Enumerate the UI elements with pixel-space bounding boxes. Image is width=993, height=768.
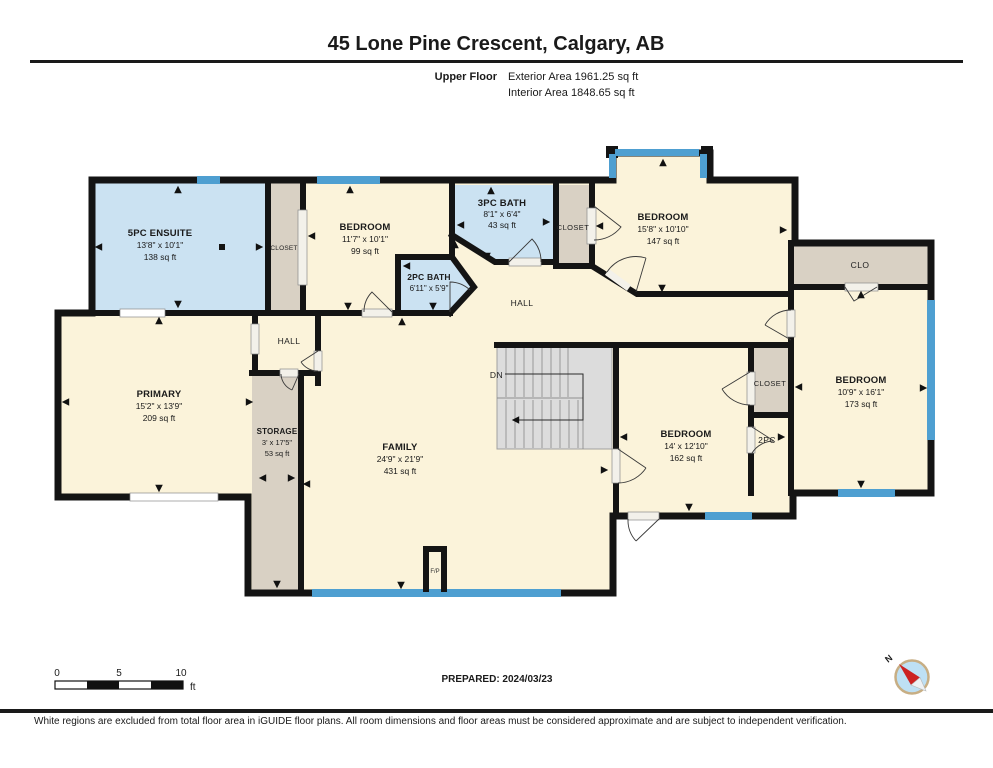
stairs-down-label: DN (490, 370, 503, 380)
room-area: 99 sq ft (351, 246, 380, 256)
room-area: 431 sq ft (384, 466, 417, 476)
closet2-label: CLOSET (557, 223, 589, 232)
room-name: FAMILY (382, 442, 418, 453)
prepared-date: PREPARED: 2024/03/23 (442, 674, 553, 685)
room-storage (252, 373, 301, 593)
scale-bar: 0 5 10 ft (54, 668, 196, 693)
scale-tick-5: 5 (116, 668, 122, 679)
room-name: BEDROOM (637, 212, 688, 223)
room-name: 3PC BATH (478, 198, 526, 209)
room-area: 138 sq ft (144, 252, 177, 262)
footer-divider (0, 709, 993, 713)
floor-label: Upper Floor (435, 71, 498, 83)
room-area: 53 sq ft (265, 449, 291, 458)
header-divider (30, 60, 963, 63)
closet1-label: CLOSET (270, 245, 297, 252)
room-area: 43 sq ft (488, 220, 517, 230)
scale-unit: ft (190, 682, 196, 693)
room-name: BEDROOM (339, 222, 390, 233)
hall-center-label: HALL (511, 298, 534, 308)
room-dims: 13'8" x 10'1" (137, 240, 184, 250)
compass-north-label: N (883, 653, 894, 665)
exterior-area: Exterior Area 1961.25 sq ft (508, 71, 638, 83)
hall-small-label: HALL (278, 336, 301, 346)
room-name: PRIMARY (137, 389, 182, 400)
room-dims: 14' x 12'10" (664, 441, 708, 451)
room-dims: 24'9" x 21'9" (377, 454, 424, 464)
room-name: STORAGE (257, 427, 298, 436)
room-name: 2PC BATH (407, 272, 450, 282)
scale-tick-0: 0 (54, 668, 60, 679)
fireplace-label: F/P (430, 569, 439, 575)
compass-icon: N (883, 653, 928, 694)
room-dims: 15'8" x 10'10" (637, 224, 688, 234)
room-dims: 6'11" x 5'9" (410, 284, 449, 293)
page-title: 45 Lone Pine Crescent, Calgary, AB (328, 33, 665, 55)
room-area: 209 sq ft (143, 413, 176, 423)
room-dims: 10'9" x 16'1" (838, 387, 885, 397)
room-dims: 11'7" x 10'1" (342, 234, 388, 244)
room-name: BEDROOM (660, 429, 711, 440)
header: 45 Lone Pine Crescent, Calgary, AB Upper… (30, 33, 963, 99)
room-dims: 15'2" x 13'9" (136, 401, 183, 411)
disclaimer-text: White regions are excluded from total fl… (34, 716, 847, 727)
closet3-label: CLOSET (754, 379, 786, 388)
room-dims: 3' x 17'5" (262, 438, 292, 447)
clo-label: CLO (851, 260, 870, 270)
ensuite-marker-dot (219, 244, 225, 250)
interior-area: Interior Area 1848.65 sq ft (508, 87, 635, 99)
two-pc-label: 2PC (758, 435, 776, 445)
room-name: 5PC ENSUITE (128, 228, 193, 239)
room-area: 173 sq ft (845, 399, 878, 409)
room-area: 147 sq ft (647, 236, 680, 246)
staircase (497, 345, 612, 449)
room-name: BEDROOM (835, 375, 886, 386)
scale-tick-10: 10 (175, 668, 187, 679)
room-area: 162 sq ft (670, 453, 703, 463)
floor-plan-page: 45 Lone Pine Crescent, Calgary, AB Upper… (0, 0, 993, 768)
floor-plan-canvas: 45 Lone Pine Crescent, Calgary, AB Upper… (0, 0, 993, 768)
room-dims: 8'1" x 6'4" (483, 209, 520, 219)
